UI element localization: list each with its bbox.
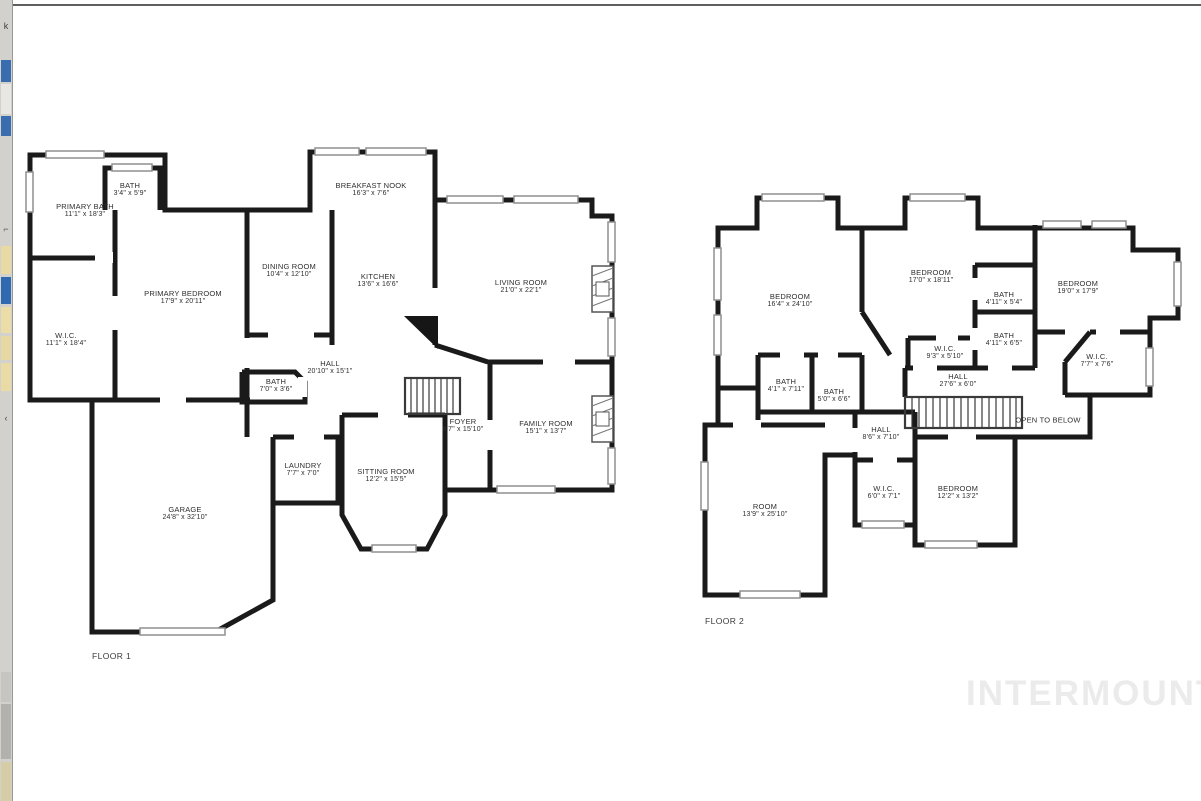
room-label-garage: GARAGE 24'8" x 32'10" — [162, 505, 207, 523]
room-label-wic-77: W.I.C. 7'7" x 7'6" — [1081, 352, 1114, 370]
room-name: OPEN TO BELOW — [1015, 415, 1080, 424]
room-name: FAMILY ROOM — [519, 419, 573, 428]
room-name: BATH — [986, 290, 1022, 299]
floor1-tag: FLOOR 1 — [92, 651, 131, 661]
room-dims: 7'7" x 7'6" — [1081, 361, 1114, 370]
room-label-room: ROOM 13'9" x 25'10" — [742, 502, 787, 520]
room-label-bedroom-122: BEDROOM 12'2" x 13'2" — [938, 484, 979, 502]
room-dims: 11'1" x 18'4" — [46, 340, 86, 349]
room-label-bath-41: BATH 4'1" x 7'11" — [768, 377, 804, 395]
room-name: BEDROOM — [1058, 279, 1099, 288]
room-dims: 5'0" x 6'6" — [818, 396, 851, 405]
room-name: HALL — [940, 372, 977, 381]
room-name: HALL — [307, 359, 352, 368]
room-dims: 21'0" x 22'1" — [495, 287, 547, 296]
room-label-kitchen: KITCHEN 13'6" x 16'6" — [358, 272, 399, 290]
room-label-bedroom-170: BEDROOM 17'0" x 18'11" — [909, 268, 954, 286]
room-name: LAUNDRY — [284, 461, 321, 470]
kitchen-counter — [404, 316, 438, 349]
room-label-hall-276: HALL 27'6" x 6'0" — [940, 372, 977, 390]
room-label-breakfast-nook: BREAKFAST NOOK 16'3" x 7'6" — [335, 181, 406, 199]
room-name: BREAKFAST NOOK — [335, 181, 406, 190]
room-label-bedroom-190: BEDROOM 19'0" x 17'9" — [1058, 279, 1099, 297]
room-dims: 17'9" x 20'11" — [144, 298, 222, 307]
room-label-bath-411-54: BATH 4'11" x 5'4" — [986, 290, 1022, 308]
room-label-bath-411-65: BATH 4'11" x 6'5" — [986, 331, 1022, 349]
room-dims: 7'7" x 7'0" — [284, 470, 321, 479]
room-name: BATH — [768, 377, 804, 386]
room-dims: 17'0" x 18'11" — [909, 277, 954, 286]
room-label-dining-room: DINING ROOM 10'4" x 12'10" — [262, 262, 316, 280]
room-name: KITCHEN — [358, 272, 399, 281]
room-name: BATH — [818, 387, 851, 396]
room-name: HALL — [863, 425, 900, 434]
intermountain-watermark: INTERMOUNTAIN — [966, 674, 1201, 714]
room-label-hall-bath: BATH 7'0" x 3'6" — [260, 377, 293, 395]
room-dims: 3'4" x 5'9" — [114, 190, 147, 199]
room-name: LIVING ROOM — [495, 278, 547, 287]
room-label-foyer: FOYER 8'7" x 15'10" — [443, 417, 484, 435]
room-label-wic-60: W.I.C. 6'0" x 7'1" — [868, 484, 901, 502]
open-to-below-label: OPEN TO BELOW — [1015, 415, 1080, 424]
room-name: BATH — [260, 377, 293, 386]
room-label-wic-f1: W.I.C. 11'1" x 18'4" — [46, 331, 86, 349]
staircase-floor2 — [905, 397, 1022, 428]
room-label-laundry: LAUNDRY 7'7" x 7'0" — [284, 461, 321, 479]
room-name: GARAGE — [162, 505, 207, 514]
room-name: PRIMARY BATH — [56, 202, 114, 211]
fireplace-living-room — [592, 266, 613, 312]
room-dims: 4'11" x 5'4" — [986, 299, 1022, 308]
room-dims: 12'2" x 13'2" — [938, 493, 979, 502]
room-dims: 6'0" x 7'1" — [868, 493, 901, 502]
room-label-bath-small: BATH 3'4" x 5'9" — [114, 181, 147, 199]
room-name: PRIMARY BEDROOM — [144, 289, 222, 298]
room-label-family-room: FAMILY ROOM 15'1" x 13'7" — [519, 419, 573, 437]
room-label-primary-bath: PRIMARY BATH 11'1" x 18'3" — [56, 202, 114, 220]
room-label-primary-bedroom: PRIMARY BEDROOM 17'9" x 20'11" — [144, 289, 222, 307]
room-dims: 8'7" x 15'10" — [443, 426, 484, 435]
room-name: BEDROOM — [767, 292, 812, 301]
room-dims: 8'6" x 7'10" — [863, 434, 900, 443]
room-label-living-room: LIVING ROOM 21'0" x 22'1" — [495, 278, 547, 296]
windows — [26, 148, 1181, 635]
floor2-tag: FLOOR 2 — [705, 616, 744, 626]
room-dims: 24'8" x 32'10" — [162, 514, 207, 523]
room-dims: 7'0" x 3'6" — [260, 386, 293, 395]
room-dims: 12'2" x 15'5" — [357, 476, 414, 485]
room-label-hall-86: HALL 8'6" x 7'10" — [863, 425, 900, 443]
room-name: BEDROOM — [938, 484, 979, 493]
fireplace-family-room — [592, 396, 613, 442]
room-dims: 10'4" x 12'10" — [262, 271, 316, 280]
room-name: BATH — [986, 331, 1022, 340]
room-dims: 9'3" x 5'10" — [927, 353, 964, 362]
room-label-bath-50: BATH 5'0" x 6'6" — [818, 387, 851, 405]
room-dims: 13'6" x 16'6" — [358, 281, 399, 290]
room-name: W.I.C. — [868, 484, 901, 493]
room-dims: 15'1" x 13'7" — [519, 428, 573, 437]
room-name: SITTING ROOM — [357, 467, 414, 476]
room-label-hall-f1: HALL 20'10" x 15'1" — [307, 359, 352, 377]
room-name: W.I.C. — [927, 344, 964, 353]
room-label-sitting-room: SITTING ROOM 12'2" x 15'5" — [357, 467, 414, 485]
room-label-wic-93: W.I.C. 9'3" x 5'10" — [927, 344, 964, 362]
room-name: ROOM — [742, 502, 787, 511]
staircase-floor1 — [405, 378, 460, 414]
room-label-bedroom-164: BEDROOM 16'4" x 24'10" — [767, 292, 812, 310]
room-name: FOYER — [443, 417, 484, 426]
room-dims: 4'1" x 7'11" — [768, 386, 804, 395]
room-name: BATH — [114, 181, 147, 190]
room-dims: 16'3" x 7'6" — [335, 190, 406, 199]
room-dims: 11'1" x 18'3" — [56, 211, 114, 220]
room-dims: 27'6" x 6'0" — [940, 381, 977, 390]
room-dims: 13'9" x 25'10" — [742, 511, 787, 520]
floor1-walls — [30, 152, 612, 632]
room-name: W.I.C. — [46, 331, 86, 340]
floorplan-page: k⌐‹ — [0, 0, 1201, 801]
room-dims: 20'10" x 15'1" — [307, 368, 352, 377]
room-dims: 19'0" x 17'9" — [1058, 288, 1099, 297]
room-name: DINING ROOM — [262, 262, 316, 271]
room-name: W.I.C. — [1081, 352, 1114, 361]
room-dims: 16'4" x 24'10" — [767, 301, 812, 310]
room-name: BEDROOM — [909, 268, 954, 277]
room-dims: 4'11" x 6'5" — [986, 340, 1022, 349]
